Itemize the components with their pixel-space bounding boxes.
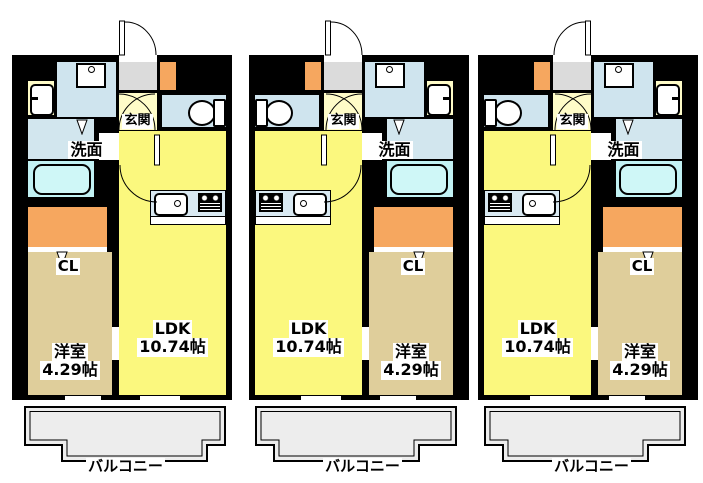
floor-plan-unit-3: 玄関 洗面 CL LDK 10.74帖 洋室 4.29帖 バルコニー bbox=[478, 55, 698, 465]
closet-label: CL bbox=[397, 258, 429, 275]
floor-plan-canvas: 玄関 洗面 CL LDK 10.74帖 洋室 4.29帖 バルコニー bbox=[0, 0, 703, 483]
closet-label: CL bbox=[52, 258, 84, 275]
floor-plan-unit-2: 玄関 洗面 CL LDK 10.74帖 洋室 4.29帖 バルコニー bbox=[249, 55, 469, 465]
bedroom-label: 洋室 4.29帖 bbox=[598, 343, 682, 380]
entrance-label: 玄関 bbox=[324, 114, 363, 129]
unit-labels: 玄関 洗面 CL LDK 10.74帖 洋室 4.29帖 バルコニー bbox=[12, 55, 232, 465]
entry-door-arc bbox=[118, 19, 157, 59]
unit-labels: 玄関 洗面 CL LDK 10.74帖 洋室 4.29帖 バルコニー bbox=[249, 55, 469, 465]
ldk-label: LDK 10.74帖 bbox=[484, 320, 591, 357]
closet-label: CL bbox=[626, 258, 658, 275]
washroom-label: 洗面 bbox=[57, 141, 116, 159]
bedroom-label: 洋室 4.29帖 bbox=[369, 343, 453, 380]
floor-plan-unit-1: 玄関 洗面 CL LDK 10.74帖 洋室 4.29帖 バルコニー bbox=[12, 55, 232, 465]
entrance-label: 玄関 bbox=[553, 114, 592, 129]
ldk-label: LDK 10.74帖 bbox=[119, 320, 226, 357]
washroom-label: 洗面 bbox=[365, 141, 424, 159]
balcony-label: バルコニー bbox=[491, 458, 692, 475]
entry-door-arc bbox=[553, 19, 592, 59]
washroom-label: 洗面 bbox=[594, 141, 653, 159]
bedroom-label: 洋室 4.29帖 bbox=[28, 343, 112, 380]
entrance-label: 玄関 bbox=[118, 114, 157, 129]
ldk-label: LDK 10.74帖 bbox=[255, 320, 362, 357]
balcony-label: バルコニー bbox=[25, 458, 226, 475]
unit-labels: 玄関 洗面 CL LDK 10.74帖 洋室 4.29帖 バルコニー bbox=[478, 55, 698, 465]
entry-door-arc bbox=[324, 19, 363, 59]
balcony-label: バルコニー bbox=[262, 458, 463, 475]
